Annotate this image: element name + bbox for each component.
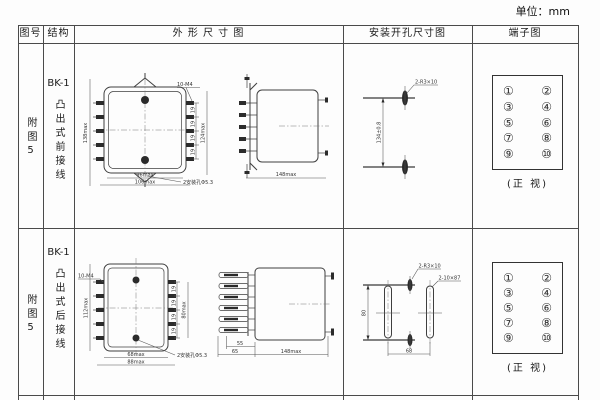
header-outline: 外 形 尺 寸 图 — [74, 27, 343, 41]
row1-model: BK-1 — [43, 78, 74, 89]
row2-model: BK-1 — [43, 247, 74, 258]
row1-structure: 凸出式前接线 — [43, 93, 74, 188]
row1-outline-drawing: 138max 19 19 19 19 124max 10-M4 96max 10… — [74, 43, 343, 228]
dim-depth: 148max — [276, 172, 296, 178]
svg-text:19: 19 — [172, 286, 178, 292]
terminal-10: ⑩ — [541, 332, 552, 344]
svg-text:19: 19 — [191, 107, 197, 113]
dim-slot-long: 2-10×87 — [439, 276, 461, 282]
terminal-9: ⑨ — [503, 148, 514, 160]
unit-label: 单位：mm — [465, 3, 570, 19]
svg-text:19: 19 — [172, 328, 178, 334]
row1-terminal-caption: (正 视) — [480, 175, 575, 190]
dim-thread: 10-M4 — [177, 82, 193, 88]
svg-text:19: 19 — [191, 149, 197, 155]
dim-height: 138max — [83, 123, 89, 143]
row2-front-terminals — [93, 280, 176, 340]
dim-slot: 2-R3×10 — [415, 80, 437, 86]
dim-depth-inner1: 55 — [237, 341, 243, 347]
header-install: 安装开孔尺寸图 — [343, 27, 472, 41]
terminal-2: ② — [541, 85, 552, 97]
row1-install-drawing: 134±0.8 2-R3×10 — [343, 43, 472, 228]
svg-text:19: 19 — [172, 300, 178, 306]
dim-depth: 148max — [281, 349, 301, 355]
svg-text:19: 19 — [191, 121, 197, 127]
drawing-sheet: 单位：mm 图号 结构 外 形 尺 寸 图 安装开孔尺寸图 端子图 附图5 BK… — [0, 0, 600, 400]
dim-depth-inner2: 65 — [232, 349, 238, 355]
terminal-2: ② — [541, 272, 552, 284]
terminal-6: ⑥ — [541, 117, 552, 129]
dim-thread: 10-M4 — [78, 274, 94, 280]
svg-text:19: 19 — [172, 314, 178, 320]
terminal-4: ④ — [541, 101, 552, 113]
terminal-3: ③ — [503, 101, 514, 113]
row2-install-drawing: 80 68 2-R3×10 2-10×87 — [343, 228, 472, 395]
terminal-10: ⑩ — [541, 148, 552, 160]
terminal-5: ⑤ — [503, 117, 514, 129]
terminal-7: ⑦ — [503, 317, 514, 329]
row2-terminal-caption: (正 视) — [480, 359, 575, 374]
dim-slot-small: 2-R3×10 — [419, 264, 441, 270]
terminal-1: ① — [503, 272, 514, 284]
dim-spacing-v: 80 — [362, 310, 368, 316]
dim-right-height: 124max — [201, 123, 207, 143]
dim-width-inner: 68max — [127, 352, 144, 358]
terminal-7: ⑦ — [503, 132, 514, 144]
row1-side-view — [239, 74, 329, 178]
header-terminal: 端子图 — [472, 27, 578, 41]
row2-structure: 凸出式后接线 — [43, 262, 74, 357]
terminal-4: ④ — [541, 287, 552, 299]
terminal-9: ⑨ — [503, 332, 514, 344]
dim-width-outer: 106max — [135, 180, 155, 186]
terminal-1: ① — [503, 85, 514, 97]
dim-hole-spacing: 134±0.8 — [377, 122, 383, 144]
terminal-8: ⑧ — [541, 317, 552, 329]
dim-hole-note: 2安装孔Φ5.3 — [177, 352, 207, 359]
row2-terminal-box: ① ② ③ ④ ⑤ ⑥ ⑦ ⑧ ⑨ ⑩ — [492, 262, 563, 354]
row2-side-view — [219, 268, 334, 340]
dim-spacing-h: 68 — [406, 349, 412, 355]
terminal-5: ⑤ — [503, 302, 514, 314]
dim-width-outer: 88max — [127, 360, 144, 366]
table-border-top — [18, 25, 578, 26]
terminal-3: ③ — [503, 287, 514, 299]
row1-fig-no: 附图5 — [18, 103, 43, 173]
row-separator-2 — [18, 395, 578, 396]
row2-fig-no: 附图5 — [18, 285, 43, 345]
row2-outline-drawing: 10-M4 112max 19 19 19 19 80max 68max 88m… — [74, 228, 343, 395]
header-structure: 结构 — [43, 27, 74, 41]
terminal-6: ⑥ — [541, 302, 552, 314]
dim-height: 112max — [84, 298, 90, 318]
header-fig-no: 图号 — [18, 27, 43, 41]
table-border-right — [578, 25, 579, 400]
dim-hole-note: 2安装孔Φ5.3 — [183, 179, 213, 186]
svg-text:19: 19 — [191, 135, 197, 141]
dim-right-height: 80max — [182, 301, 188, 318]
col-line-4 — [472, 25, 473, 400]
terminal-8: ⑧ — [541, 132, 552, 144]
row1-terminal-box: ① ② ③ ④ ⑤ ⑥ ⑦ ⑧ ⑨ ⑩ — [492, 75, 563, 170]
dim-width-inner: 96max — [136, 173, 153, 179]
